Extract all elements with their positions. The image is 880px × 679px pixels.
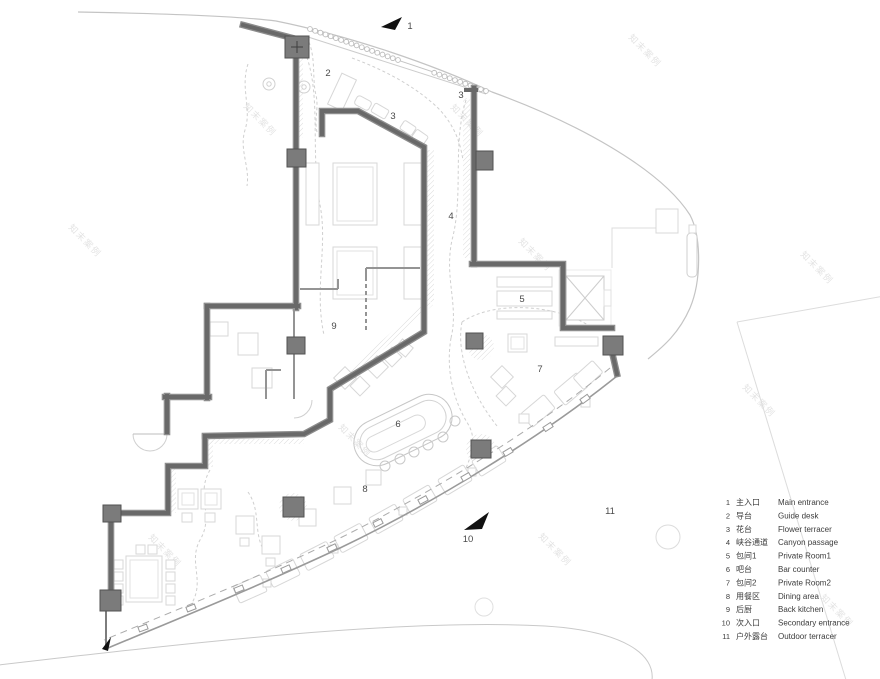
hedge-scallop (359, 45, 364, 50)
watermark-text: 知末案例 (337, 422, 374, 459)
legend-label-zh: 用餐区 (736, 592, 760, 601)
legend-label-zh: 后厨 (736, 604, 752, 614)
area-label-1: 1 (407, 21, 412, 32)
area-label-3a: 3 (390, 111, 395, 122)
legend-label-en: Private Room1 (778, 552, 831, 561)
area-label-9: 9 (331, 321, 336, 332)
hedge-scallop (396, 58, 401, 63)
legend-row: 10次入口Secondary entrance (722, 618, 850, 628)
legend-row: 6吧台Bar counter (726, 564, 820, 574)
hedge-scallop (447, 76, 452, 81)
hedge-scallop (432, 70, 437, 75)
area-label-4: 4 (448, 211, 453, 222)
legend-row: 8用餐区Dining area (726, 592, 820, 601)
main-entrance-arrow (381, 17, 402, 30)
furniture-layer (114, 73, 611, 605)
area-label-3b: 3 (458, 90, 463, 101)
hedge-scallop (385, 54, 390, 59)
legend-number: 5 (726, 552, 730, 561)
legend-row: 1主入口Main entrance (726, 497, 829, 507)
area-label-7: 7 (537, 364, 542, 375)
area-label-6: 6 (395, 419, 400, 430)
legend-number: 7 (726, 578, 730, 587)
area-label-8: 8 (362, 484, 367, 495)
legend-label-en: Back kitchen (778, 605, 823, 614)
legend-label-zh: 包间1 (736, 551, 757, 561)
hedge-scallop (370, 48, 375, 53)
railing-post (503, 448, 513, 457)
legend-label-en: Bar counter (778, 565, 820, 574)
floor-plan-page: 知末案例知末案例知末案例知末案例知末案例知末案例知末案例知末案例知末案例知末案例… (0, 0, 880, 679)
hedge-scallop (390, 56, 395, 61)
legend-number: 8 (726, 592, 730, 601)
watermark-text: 知末案例 (517, 236, 554, 273)
area-label-2: 2 (325, 68, 330, 79)
legend-label-en: Outdoor terracer (778, 632, 837, 641)
legend-row: 11户外露台Outdoor terracer (722, 631, 837, 641)
railing-post (138, 624, 148, 632)
legend-label-zh: 户外露台 (736, 631, 768, 641)
watermark-text: 知末案例 (627, 32, 664, 69)
legend: 1主入口Main entrance2导台Guide desk3花台Flower … (722, 497, 850, 641)
terrace-circle-1 (656, 525, 680, 549)
ne-platform-outline (612, 228, 656, 268)
legend-label-en: Canyon passage (778, 538, 839, 547)
legend-number: 1 (726, 498, 730, 507)
legend-label-zh: 包间2 (736, 577, 757, 587)
hedge-scallop (442, 74, 447, 79)
gate-bench-cap (689, 225, 696, 233)
legend-label-en: Flower terracer (778, 525, 832, 534)
bar-counter (346, 387, 460, 474)
legend-label-en: Private Room2 (778, 578, 831, 587)
legend-label-en: Dining area (778, 592, 819, 601)
legend-row: 2导台Guide desk (726, 510, 820, 520)
legend-label-zh: 吧台 (736, 564, 752, 574)
legend-label-zh: 花台 (736, 524, 752, 534)
legend-label-zh: 峡谷通道 (736, 537, 768, 547)
hedge-scallop (333, 36, 338, 41)
gate-bench (687, 233, 697, 277)
terrace-circle-2 (475, 598, 493, 616)
area-label-10: 10 (463, 534, 474, 545)
legend-row: 3花台Flower terracer (726, 524, 832, 534)
legend-number: 3 (726, 525, 730, 534)
hedge-scallop (365, 47, 370, 52)
site-edge-north (78, 12, 699, 359)
legend-number: 2 (726, 511, 730, 520)
floor-plan: 知末案例知末案例知末案例知末案例知末案例知末案例知末案例知末案例知末案例知末案例… (0, 0, 880, 679)
hedge-scallop (339, 38, 344, 43)
hedge-scallop (308, 27, 313, 32)
legend-label-zh: 导台 (736, 510, 752, 520)
site-edge-south (0, 625, 652, 679)
area-label-5: 5 (519, 294, 524, 305)
legend-number: 9 (726, 605, 730, 614)
watermark-text: 知末案例 (537, 531, 574, 568)
legend-number: 4 (726, 538, 730, 547)
legend-number: 6 (726, 565, 730, 574)
hedge-scallop (453, 78, 458, 83)
legend-row: 7包间2Private Room2 (726, 577, 832, 587)
watermark-text: 知末案例 (741, 382, 778, 419)
hedge-scallop (375, 50, 380, 55)
railing-post (543, 422, 553, 431)
watermark-text: 知末案例 (799, 249, 836, 286)
legend-label-en: Main entrance (778, 498, 829, 507)
hedge-scallop (478, 87, 483, 92)
legend-number: 10 (722, 619, 730, 628)
hedge-scallop (344, 39, 349, 44)
hedge-scallop (458, 79, 463, 84)
watermark-text: 知末案例 (67, 222, 104, 259)
hedge-scallop (463, 81, 468, 86)
hedge-scallop (323, 32, 328, 37)
legend-row: 4峡谷通道Canyon passage (726, 537, 839, 547)
legend-label-zh: 主入口 (736, 497, 760, 507)
hedge-scallop (354, 43, 359, 48)
legend-row: 5包间1Private Room1 (726, 551, 832, 561)
legend-label-en: Secondary entrance (778, 619, 850, 628)
legend-number: 11 (722, 632, 730, 641)
hedge-scallop (313, 28, 318, 33)
secondary-entrance-arrow (464, 512, 489, 530)
hedge-scallop (484, 89, 489, 94)
hedge-scallop (437, 72, 442, 77)
legend-label-zh: 次入口 (736, 618, 760, 628)
ne-platform-box (656, 209, 678, 233)
bar-stools (380, 416, 460, 471)
terrace-edge-1 (737, 296, 880, 322)
legend-label-en: Guide desk (778, 511, 819, 520)
hedge-strip (305, 27, 488, 94)
hedge-scallop (318, 30, 323, 35)
hedge-scallop (380, 52, 385, 57)
hedge-scallop (349, 41, 354, 46)
area-label-11: 11 (605, 506, 615, 517)
legend-row: 9后厨Back kitchen (726, 604, 824, 614)
hedge-scallop (328, 34, 333, 39)
